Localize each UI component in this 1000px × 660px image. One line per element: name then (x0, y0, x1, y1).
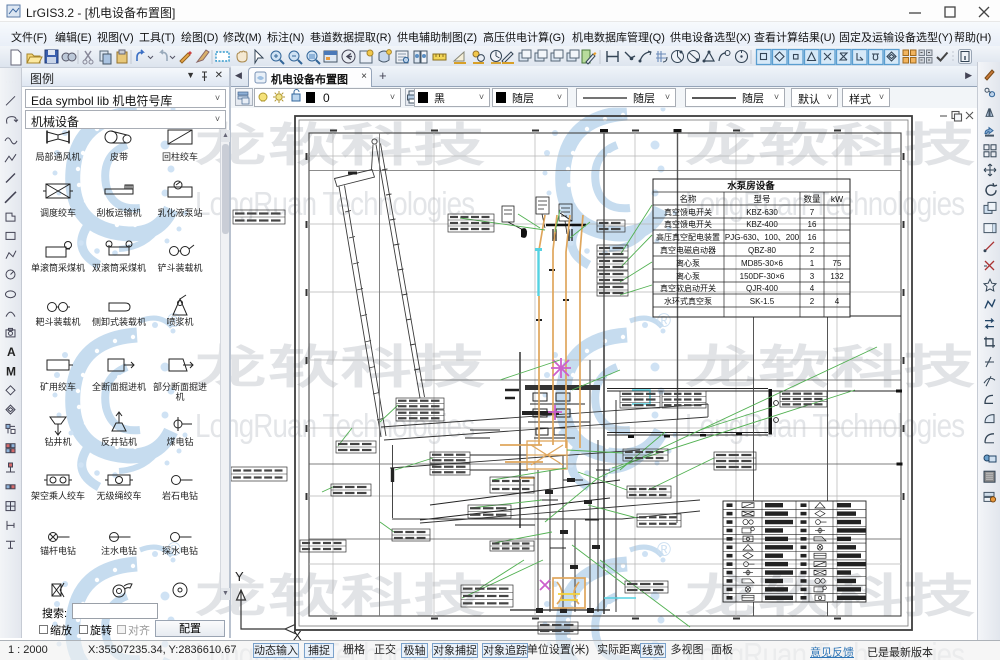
svg-text:4: 4 (810, 284, 815, 293)
svg-text:数量: 数量 (803, 194, 821, 204)
svg-text:3: 3 (810, 272, 815, 281)
svg-text:注水电钻: 注水电钻 (101, 545, 137, 556)
svg-text:型号: 型号 (753, 194, 770, 204)
svg-text:2: 2 (810, 246, 815, 255)
svg-text:0: 0 (323, 91, 330, 105)
svg-text:侧卸式装载机: 侧卸式装载机 (92, 316, 146, 327)
svg-text:无级绳绞车: 无级绳绞车 (96, 490, 141, 501)
svg-text:QBZ-80: QBZ-80 (748, 246, 777, 255)
svg-text:回柱绞车: 回柱绞车 (162, 151, 198, 162)
svg-text:耙斗装载机: 耙斗装载机 (35, 316, 80, 327)
svg-text:真空馈电开关: 真空馈电开关 (664, 219, 712, 229)
svg-text:M: M (6, 365, 16, 379)
svg-text:黑: 黑 (434, 92, 445, 105)
svg-text:随层: 随层 (633, 91, 655, 105)
svg-text:部分断面掘进: 部分断面掘进 (153, 381, 207, 392)
svg-text:水泵房设备: 水泵房设备 (727, 180, 775, 192)
svg-text:架空乘人绞车: 架空乘人绞车 (31, 490, 85, 501)
svg-text:2: 2 (810, 297, 815, 306)
svg-text:机: 机 (175, 391, 184, 402)
svg-text:双滚筒采煤机: 双滚筒采煤机 (92, 262, 146, 273)
svg-text:刮板运输机: 刮板运输机 (96, 207, 141, 218)
svg-text:名称: 名称 (679, 194, 697, 204)
svg-text:PJG-630、100、200: PJG-630、100、200 (725, 233, 800, 242)
svg-text:反井钻机: 反井钻机 (101, 436, 137, 447)
svg-text:单滚筒采煤机: 单滚筒采煤机 (31, 262, 85, 273)
svg-text:岩石电钻: 岩石电钻 (162, 490, 198, 501)
svg-text:煤电钻: 煤电钻 (166, 436, 193, 447)
svg-text:局部通风机: 局部通风机 (35, 151, 80, 162)
svg-text:离心泵: 离心泵 (676, 258, 700, 268)
svg-text:乳化液泵站: 乳化液泵站 (157, 207, 202, 218)
svg-text:A: A (7, 345, 16, 359)
svg-text:KBZ-630: KBZ-630 (746, 208, 778, 217)
svg-text:QJR-400: QJR-400 (746, 284, 779, 293)
svg-text:铲斗装载机: 铲斗装载机 (157, 262, 202, 273)
svg-text:16: 16 (808, 220, 817, 229)
svg-text:75: 75 (833, 259, 842, 268)
svg-text:喷浆机: 喷浆机 (166, 316, 193, 327)
svg-text:离心泵: 离心泵 (676, 271, 700, 281)
svg-text:4: 4 (835, 297, 840, 306)
svg-text:真空电磁启动器: 真空电磁启动器 (660, 245, 716, 255)
svg-text:SK-1.5: SK-1.5 (750, 297, 775, 306)
svg-text:KBZ-400: KBZ-400 (746, 220, 778, 229)
svg-text:真空馈电开关: 真空馈电开关 (664, 207, 712, 217)
svg-text:皮带: 皮带 (110, 151, 128, 162)
svg-text:水环式真空泵: 水环式真空泵 (664, 296, 712, 306)
svg-text:矿用绞车: 矿用绞车 (40, 381, 76, 392)
svg-text:高压真空配电装置: 高压真空配电装置 (656, 232, 720, 242)
svg-text:1: 1 (810, 259, 815, 268)
svg-text:132: 132 (830, 272, 844, 281)
svg-text:全断面掘进机: 全断面掘进机 (92, 381, 146, 392)
svg-text:锚杆电钻: 锚杆电钻 (40, 545, 76, 556)
svg-text:150DF-30×6: 150DF-30×6 (740, 272, 785, 281)
svg-text:kW: kW (831, 194, 843, 204)
svg-text:钻井机: 钻井机 (44, 436, 71, 447)
svg-text:探水电钻: 探水电钻 (162, 545, 198, 556)
svg-text:MD85-30×6: MD85-30×6 (741, 259, 784, 268)
svg-text:随层: 随层 (742, 91, 764, 105)
svg-text:7: 7 (810, 208, 815, 217)
svg-text:调度绞车: 调度绞车 (40, 207, 76, 218)
svg-text:随层: 随层 (512, 91, 534, 105)
svg-text:Y: Y (235, 569, 244, 584)
svg-text:16: 16 (808, 233, 817, 242)
svg-text:真空软启动开关: 真空软启动开关 (660, 283, 716, 293)
